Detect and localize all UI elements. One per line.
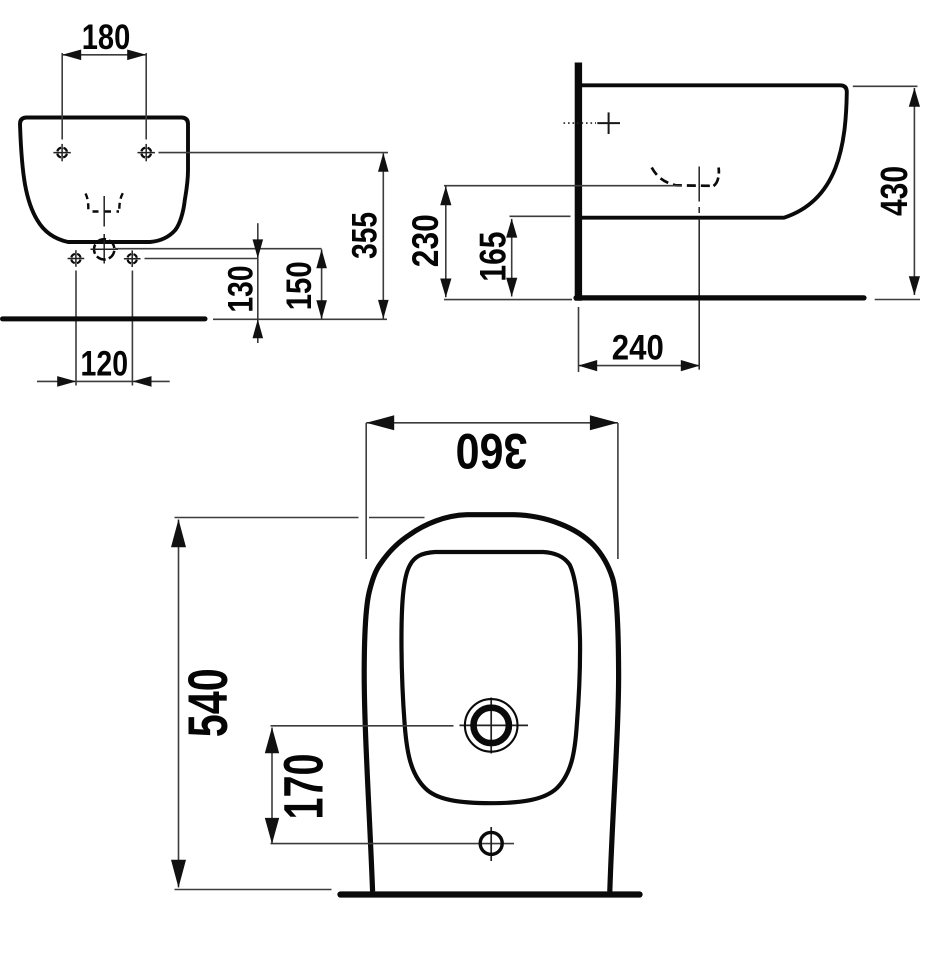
svg-text:150: 150 [279, 261, 319, 310]
svg-text:540: 540 [176, 668, 239, 737]
svg-text:170: 170 [271, 754, 334, 820]
svg-text:360: 360 [456, 423, 528, 479]
svg-text:120: 120 [81, 343, 129, 383]
svg-text:230: 230 [405, 214, 446, 267]
svg-text:180: 180 [82, 17, 131, 57]
svg-text:355: 355 [345, 212, 385, 259]
svg-text:130: 130 [221, 266, 261, 313]
svg-text:430: 430 [874, 166, 916, 216]
svg-text:240: 240 [612, 327, 664, 367]
svg-text:165: 165 [473, 232, 514, 282]
